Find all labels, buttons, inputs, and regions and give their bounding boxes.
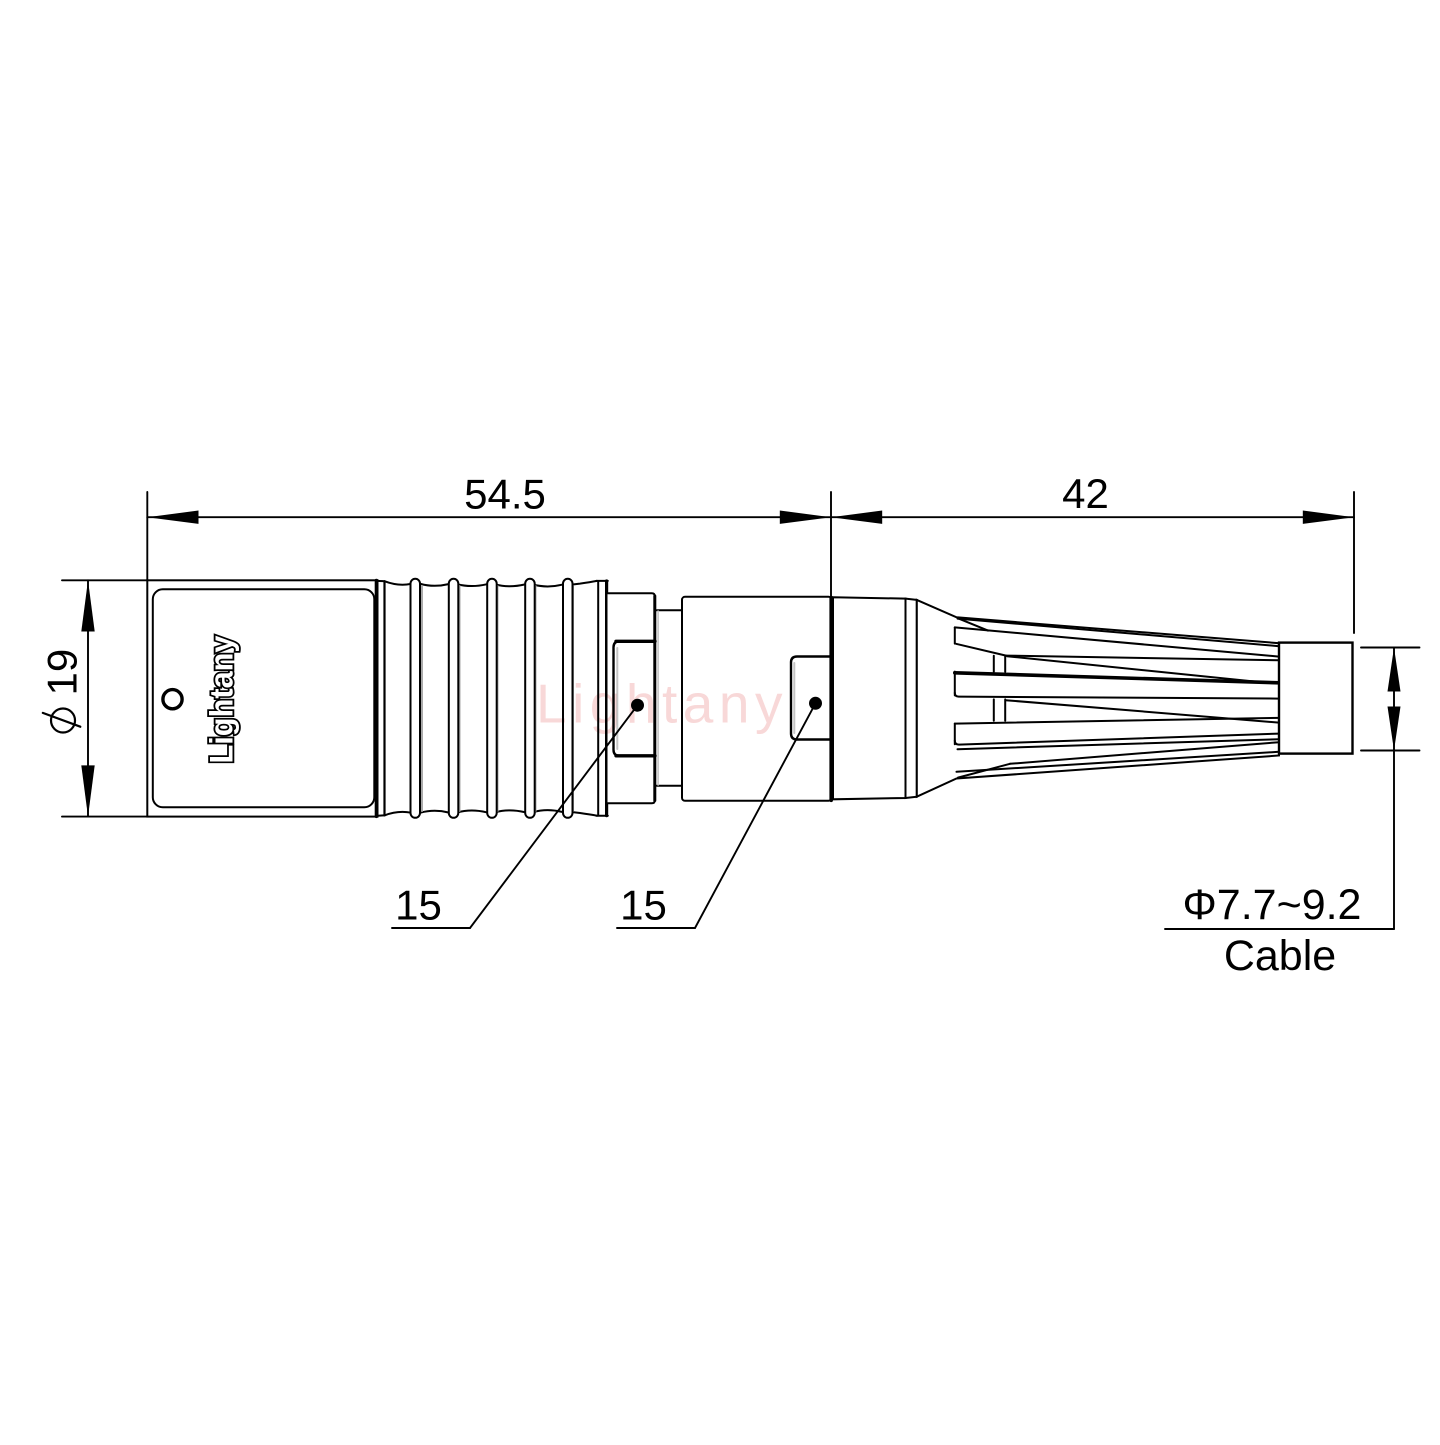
svg-text:42: 42 <box>1062 470 1109 517</box>
svg-text:15: 15 <box>620 882 667 929</box>
svg-text:Lightany: Lightany <box>204 635 240 763</box>
svg-text:19: 19 <box>39 649 86 696</box>
svg-text:Cable: Cable <box>1224 932 1336 980</box>
svg-text:Φ7.7~9.2: Φ7.7~9.2 <box>1183 881 1362 929</box>
svg-text:54.5: 54.5 <box>464 471 546 518</box>
svg-text:15: 15 <box>395 882 442 929</box>
svg-text:Lightany: Lightany <box>536 673 788 735</box>
